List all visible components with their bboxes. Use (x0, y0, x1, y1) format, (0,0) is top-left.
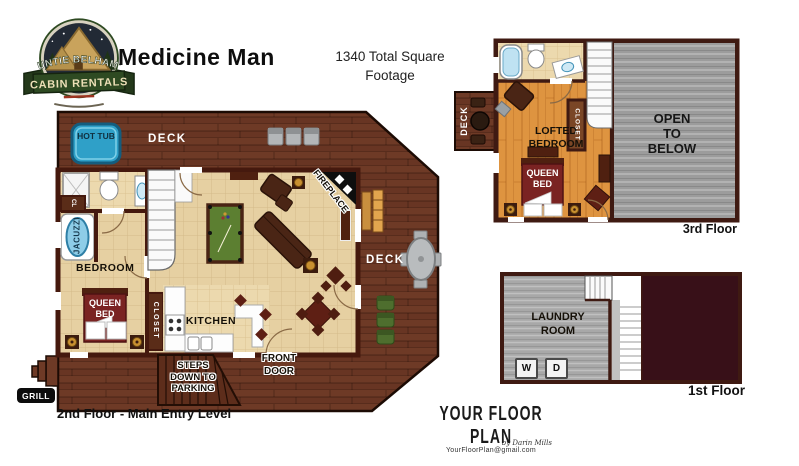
floorplan-page: AUNTIE BELHAM'S CABIN RENTALS Medicine M… (0, 0, 799, 466)
open-to-below-label: OPEN TO BELOW (647, 111, 697, 156)
upper-stairs (585, 276, 612, 300)
bedroom-label: BEDROOM (76, 262, 134, 274)
deck3-chair (471, 98, 485, 107)
window (493, 57, 499, 73)
floor1-caption: 1st Floor (640, 383, 745, 398)
dryer: D (545, 358, 568, 379)
footer-brand: YOUR FLOOR PLAN (430, 401, 552, 447)
washer: W (515, 358, 538, 379)
closet-label: CLOSET (152, 292, 159, 349)
floor2-plan: DECK HOT TUB JACUZZI CL BEDROOM QUEEN BE… (30, 110, 445, 440)
toilet (100, 172, 118, 180)
bathroom-door-gap (102, 208, 124, 214)
floor3-drawing (450, 35, 760, 240)
sqft-line2: Footage (318, 66, 462, 85)
window (55, 222, 61, 248)
unfinished-area (641, 276, 738, 380)
deck-top-label: DECK (148, 133, 187, 145)
window (508, 217, 524, 222)
stairs3 (587, 42, 612, 128)
console-table (230, 172, 258, 180)
deck3-label: DECK (459, 101, 469, 141)
kitchen-sink (188, 337, 199, 350)
floor3-plan: DECK LOFTED BEDROOM QUEEN BED CLOSET OPE… (450, 35, 760, 245)
bathroom3-door-gap (550, 78, 572, 84)
closet3-label: CLOSET (573, 102, 580, 148)
footer-email: YourFloorPlan@gmail.com (430, 447, 552, 454)
deck-chairs (268, 128, 319, 145)
wall-dresser3 (599, 155, 610, 182)
deck-door-gap (355, 285, 361, 309)
bed-blanket (86, 322, 105, 339)
footer-brand-block: YOUR FLOOR PLAN by Darin Mills YourFloor… (430, 401, 552, 454)
floor1-plan: LAUNDRY ROOM W D 1st Floor (495, 270, 760, 405)
floor2-caption: 2nd Floor - Main Entry Level (57, 406, 231, 421)
queen-bed-label: QUEEN BED (84, 298, 126, 320)
sqft-line1: 1340 Total Square (318, 47, 462, 66)
hot-tub-label: HOT TUB (72, 131, 120, 141)
window (70, 352, 88, 358)
grill-label: GRILL (17, 388, 55, 403)
total-square-footage: 1340 Total Square Footage (318, 47, 462, 85)
kitchen-label: KITCHEN (176, 315, 246, 327)
laundry-label: LAUNDRY ROOM (519, 310, 597, 338)
window (55, 292, 61, 310)
deck-right-label: DECK (366, 254, 405, 266)
deck3-table (471, 112, 489, 130)
steps-label: STEPS DOWN TO PARKING (162, 360, 224, 395)
deck-door-gap (180, 167, 202, 173)
grill-steps (46, 356, 58, 386)
lofted-bedroom-label: LOFTED BEDROOM (519, 125, 593, 151)
deck-bench (362, 190, 383, 232)
page-title: Medicine Man (118, 44, 275, 71)
front-door-label: FRONT DOOR (250, 353, 308, 378)
green-chairs (377, 296, 394, 344)
hot-tub (72, 124, 120, 163)
bed3-blanket (524, 204, 542, 216)
floor3-caption: 3rd Floor (637, 222, 737, 236)
queen-bed3-label: QUEEN BED (523, 168, 562, 190)
window (493, 153, 499, 173)
cl-label: CL (70, 193, 76, 213)
door-gap3 (588, 217, 608, 222)
jacuzzi-label: JACUZZI (73, 211, 82, 261)
